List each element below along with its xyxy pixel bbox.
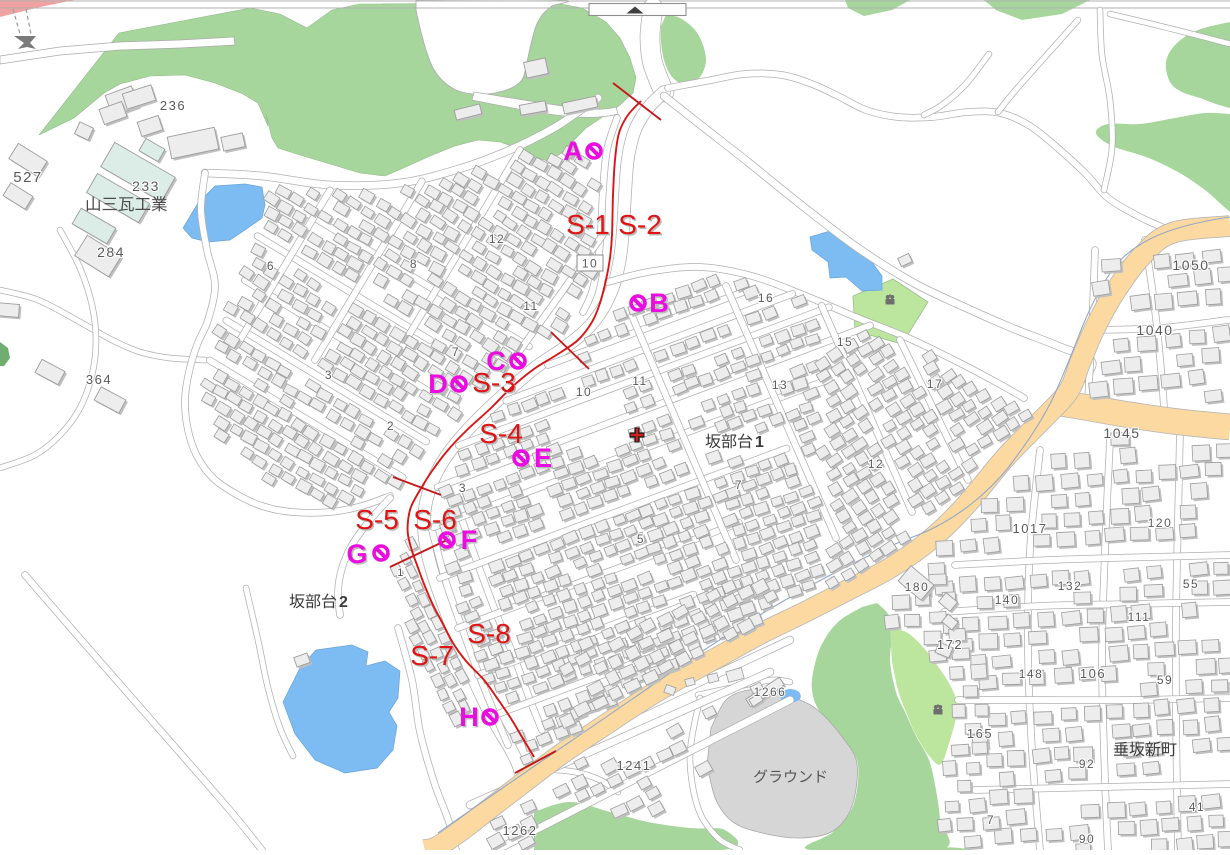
svg-text:2: 2 [339, 594, 348, 611]
svg-text:59: 59 [1157, 673, 1173, 687]
svg-text:S-5: S-5 [355, 504, 399, 535]
svg-text:106: 106 [1080, 666, 1106, 681]
svg-text:11: 11 [523, 299, 538, 313]
svg-text:236: 236 [160, 98, 186, 113]
svg-text:2: 2 [387, 419, 395, 433]
svg-text:233: 233 [132, 178, 160, 194]
svg-text:3: 3 [325, 368, 333, 382]
svg-text:284: 284 [97, 244, 125, 260]
svg-text:G: G [346, 539, 367, 569]
svg-text:1040: 1040 [1136, 322, 1173, 338]
svg-text:S-6: S-6 [413, 504, 457, 535]
svg-text:120: 120 [1148, 516, 1173, 530]
svg-text:1045: 1045 [1103, 425, 1140, 441]
svg-text:C: C [486, 346, 506, 376]
svg-text:7: 7 [452, 345, 460, 359]
svg-text:92: 92 [1079, 757, 1095, 771]
svg-text:180: 180 [905, 580, 930, 594]
svg-text:90: 90 [1079, 832, 1095, 846]
svg-text:3: 3 [459, 481, 467, 495]
svg-text:10: 10 [582, 257, 598, 271]
svg-text:E: E [534, 443, 552, 473]
svg-text:1: 1 [397, 567, 405, 579]
svg-text:12: 12 [489, 232, 505, 246]
svg-text:1266: 1266 [754, 685, 787, 699]
svg-text:1: 1 [755, 434, 764, 451]
svg-text:10: 10 [576, 385, 592, 399]
svg-text:8: 8 [410, 257, 418, 271]
svg-text:7: 7 [735, 478, 743, 492]
svg-text:16: 16 [758, 291, 774, 305]
svg-text:55: 55 [1183, 577, 1199, 591]
svg-text:5: 5 [637, 532, 645, 546]
svg-text:S-2: S-2 [618, 209, 662, 240]
svg-text:148: 148 [1019, 667, 1044, 681]
svg-text:15: 15 [837, 335, 853, 349]
svg-text:13: 13 [772, 378, 788, 392]
svg-text:6: 6 [267, 259, 275, 273]
svg-text:165: 165 [967, 726, 993, 741]
svg-text:1262: 1262 [503, 823, 538, 838]
svg-text:B: B [649, 288, 669, 318]
svg-text:S-1: S-1 [566, 209, 610, 240]
svg-text:17: 17 [927, 377, 943, 391]
svg-text:1017: 1017 [1013, 521, 1048, 536]
svg-text:12: 12 [868, 457, 884, 471]
svg-text:527: 527 [13, 169, 43, 186]
svg-text:H: H [459, 702, 479, 732]
svg-text:41: 41 [1189, 800, 1205, 814]
svg-text:1241: 1241 [617, 758, 652, 773]
svg-text:132: 132 [1058, 579, 1083, 593]
svg-text:140: 140 [995, 593, 1020, 607]
svg-text:364: 364 [86, 372, 112, 387]
svg-text:11: 11 [632, 374, 647, 388]
svg-text:A: A [563, 136, 583, 166]
svg-text:S-4: S-4 [479, 418, 523, 449]
svg-text:111: 111 [1128, 610, 1151, 624]
svg-text:F: F [461, 525, 478, 555]
svg-text:S-7: S-7 [410, 640, 454, 671]
svg-text:S-8: S-8 [467, 618, 511, 649]
svg-text:D: D [428, 369, 448, 399]
svg-text:7: 7 [987, 813, 995, 827]
svg-text:172: 172 [937, 637, 963, 652]
svg-text:1050: 1050 [1172, 257, 1209, 273]
